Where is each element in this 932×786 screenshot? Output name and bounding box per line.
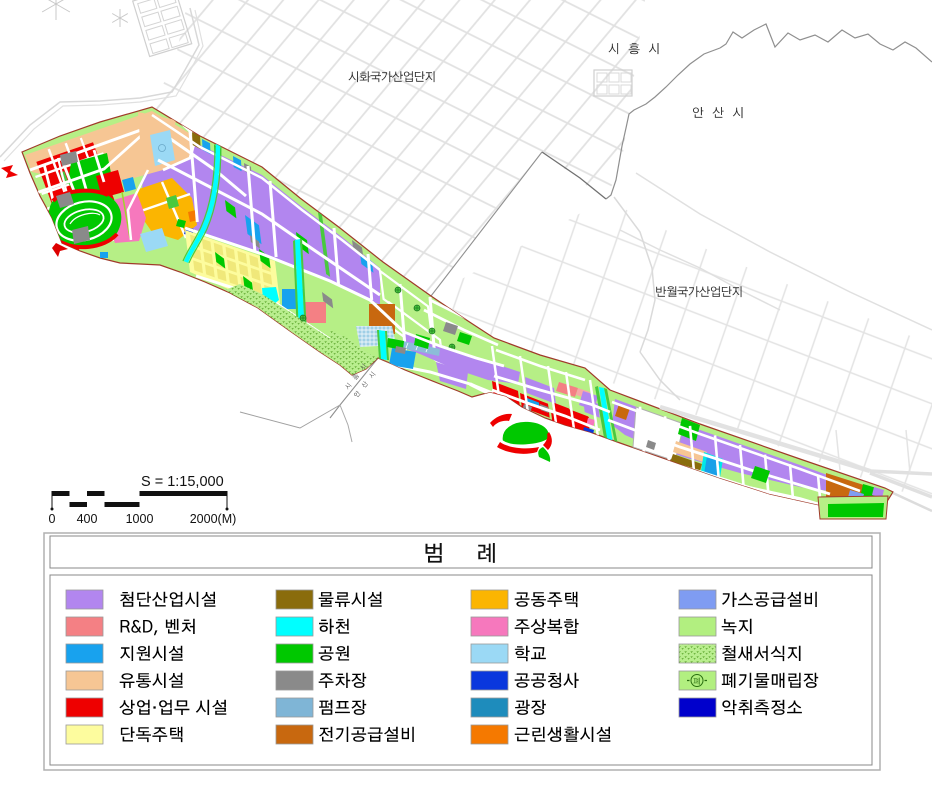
svg-text:2000(M): 2000(M) — [190, 512, 237, 526]
svg-text:1000: 1000 — [126, 512, 154, 526]
svg-text:0: 0 — [49, 512, 56, 526]
svg-text:400: 400 — [77, 512, 98, 526]
svg-text:S = 1:15,000: S = 1:15,000 — [141, 474, 224, 490]
